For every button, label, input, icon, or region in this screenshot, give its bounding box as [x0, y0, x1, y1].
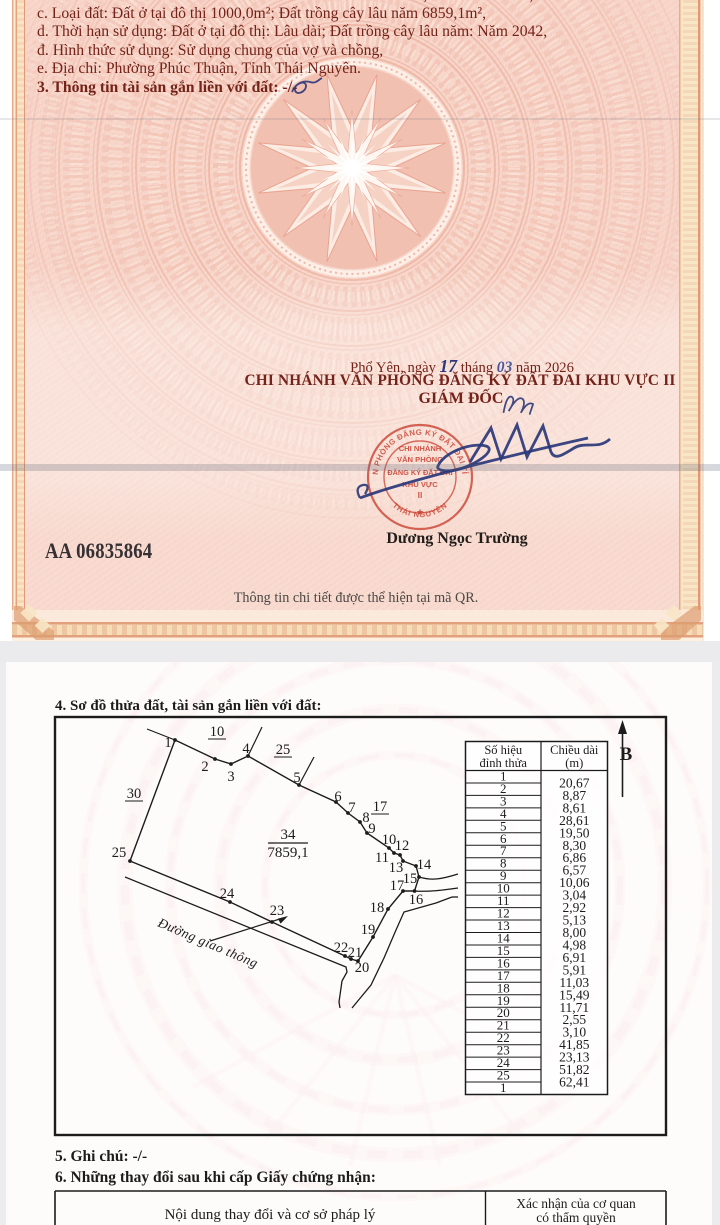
svg-text:1: 1: [500, 1080, 507, 1095]
svg-text:Xác nhận của cơ quan: Xác nhận của cơ quan: [516, 1196, 636, 1211]
svg-text:23: 23: [270, 903, 285, 919]
svg-text:19: 19: [361, 922, 376, 938]
svg-text:(m): (m): [565, 756, 583, 770]
svg-text:21: 21: [348, 945, 363, 961]
svg-text:22: 22: [334, 940, 349, 956]
svg-text:B: B: [620, 744, 633, 765]
svg-text:2: 2: [201, 759, 208, 775]
svg-text:24: 24: [220, 886, 235, 902]
svg-text:18: 18: [370, 900, 385, 916]
svg-text:20: 20: [355, 960, 370, 976]
svg-text:có thẩm quyền: có thẩm quyền: [536, 1210, 616, 1225]
svg-text:11: 11: [375, 850, 389, 866]
svg-text:34: 34: [281, 827, 297, 843]
svg-text:17: 17: [373, 799, 388, 815]
svg-text:4: 4: [242, 741, 250, 757]
svg-text:Nội dung thay đổi và cơ sở phá: Nội dung thay đổi và cơ sở pháp lý: [165, 1207, 376, 1223]
svg-text:6: 6: [334, 789, 341, 805]
svg-text:13: 13: [389, 860, 404, 876]
svg-text:7859,1: 7859,1: [267, 845, 308, 861]
svg-text:1: 1: [164, 735, 171, 751]
svg-text:5. Ghi chú: -/-: 5. Ghi chú: -/-: [55, 1148, 147, 1165]
svg-text:9: 9: [368, 821, 375, 837]
svg-text:30: 30: [127, 786, 142, 802]
svg-text:Số hiệu: Số hiệu: [484, 743, 523, 757]
svg-text:62,41: 62,41: [559, 1075, 589, 1090]
svg-text:Chiều dài: Chiều dài: [550, 743, 599, 757]
svg-text:16: 16: [409, 892, 424, 908]
svg-text:17: 17: [390, 878, 405, 894]
svg-text:4. Sơ đồ thửa đất, tài sản gắn: 4. Sơ đồ thửa đất, tài sản gắn liền với …: [55, 698, 322, 714]
svg-text:Đường giao thông: Đường giao thông: [155, 915, 261, 971]
svg-text:12: 12: [395, 838, 410, 854]
svg-text:15: 15: [403, 871, 418, 887]
svg-text:25: 25: [276, 742, 291, 758]
svg-text:14: 14: [417, 857, 432, 873]
svg-text:25: 25: [112, 845, 127, 861]
svg-text:3: 3: [227, 769, 234, 785]
svg-text:6. Những thay đổi sau khi cấp: 6. Những thay đổi sau khi cấp Giấy chứng…: [55, 1169, 376, 1186]
svg-text:10: 10: [210, 724, 225, 740]
svg-text:5: 5: [293, 770, 300, 786]
svg-text:7: 7: [348, 800, 355, 816]
